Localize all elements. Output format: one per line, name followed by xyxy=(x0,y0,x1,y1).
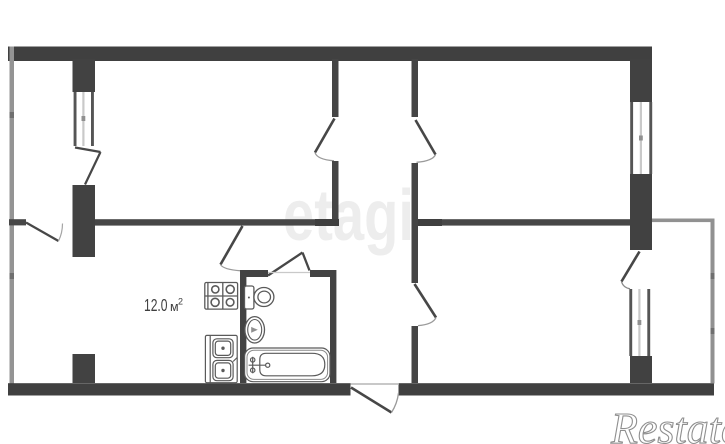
svg-text:Restate: Restate xyxy=(610,404,725,444)
svg-text:etagi: etagi xyxy=(283,175,414,255)
svg-text:12.0: 12.0 xyxy=(144,295,168,315)
svg-text:2: 2 xyxy=(178,297,183,307)
